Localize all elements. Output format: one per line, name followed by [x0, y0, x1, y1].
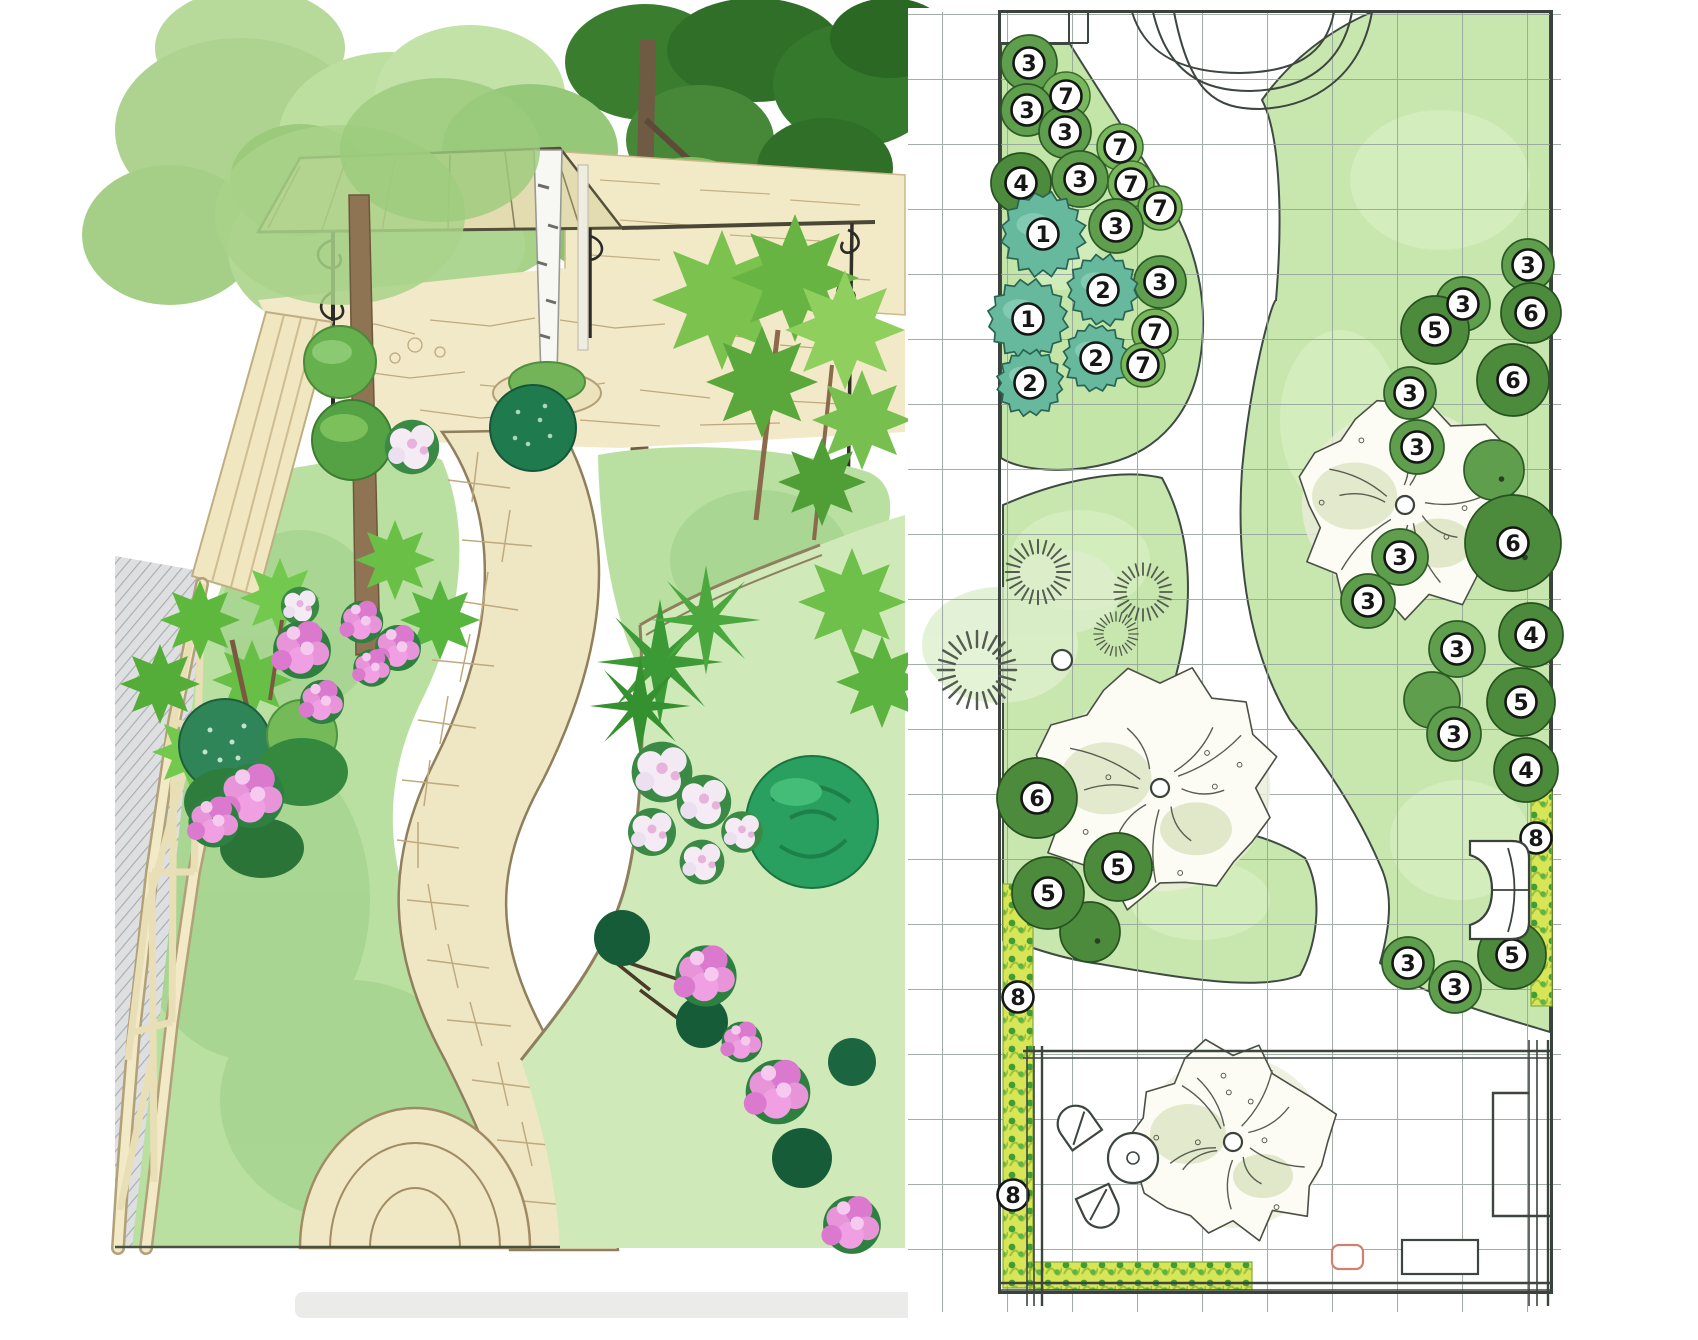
svg-text:3: 3 [1019, 99, 1034, 124]
svg-text:6: 6 [1029, 787, 1044, 812]
plant-marker-5: 5 [1506, 687, 1537, 718]
svg-text:3: 3 [1400, 952, 1415, 977]
plant-marker-7: 7 [1051, 81, 1082, 112]
plant-marker-2: 2 [1081, 343, 1112, 374]
svg-text:3: 3 [1152, 271, 1167, 296]
svg-text:4: 4 [1523, 624, 1538, 649]
plant-marker-3: 3 [1014, 48, 1045, 79]
svg-text:6: 6 [1523, 302, 1538, 327]
svg-text:2: 2 [1088, 347, 1103, 372]
plant-marker-1: 1 [1028, 219, 1059, 250]
svg-text:2: 2 [1095, 279, 1110, 304]
svg-text:4: 4 [1013, 172, 1028, 197]
plant-marker-6: 6 [1498, 365, 1529, 396]
white-post [578, 165, 588, 350]
plant-marker-1: 1 [1013, 304, 1044, 335]
tree-icon [1464, 440, 1524, 500]
svg-text:4: 4 [1518, 759, 1533, 784]
svg-text:7: 7 [1135, 354, 1150, 379]
svg-text:3: 3 [1057, 121, 1072, 146]
plant-marker-7: 7 [1105, 132, 1136, 163]
plant-marker-3: 3 [1448, 289, 1479, 320]
plant-marker-4: 4 [1516, 620, 1547, 651]
plant-marker-2: 2 [1088, 275, 1119, 306]
svg-text:2: 2 [1022, 372, 1037, 397]
svg-text:7: 7 [1112, 136, 1127, 161]
plant-marker-3: 3 [1402, 432, 1433, 463]
plant-marker-5: 5 [1033, 878, 1064, 909]
plant-marker-8: 8 [998, 1180, 1029, 1211]
svg-text:3: 3 [1455, 293, 1470, 318]
svg-text:7: 7 [1123, 173, 1138, 198]
plant-marker-5: 5 [1497, 940, 1528, 971]
plant-marker-6: 6 [1022, 783, 1053, 814]
plant-marker-6: 6 [1516, 298, 1547, 329]
plant-marker-5: 5 [1420, 315, 1451, 346]
plant-marker-5: 5 [1103, 852, 1134, 883]
plant-marker-3: 3 [1012, 95, 1043, 126]
plant-marker-3: 3 [1385, 542, 1416, 573]
svg-text:3: 3 [1447, 976, 1462, 1001]
plant-marker-3: 3 [1101, 211, 1132, 242]
plant-marker-2: 2 [1015, 368, 1046, 399]
svg-text:3: 3 [1449, 638, 1464, 663]
small-tree-ring [1052, 650, 1072, 670]
plant-marker-3: 3 [1513, 250, 1544, 281]
plant-marker-3: 3 [1440, 972, 1471, 1003]
plant-marker-3: 3 [1145, 267, 1176, 298]
svg-text:5: 5 [1040, 882, 1055, 907]
svg-text:3: 3 [1021, 52, 1036, 77]
svg-text:3: 3 [1446, 723, 1461, 748]
plant-marker-3: 3 [1442, 634, 1473, 665]
svg-text:8: 8 [1528, 827, 1543, 852]
svg-text:3: 3 [1392, 546, 1407, 571]
svg-text:3: 3 [1409, 436, 1424, 461]
svg-text:7: 7 [1147, 321, 1162, 346]
patio-table-rect [1402, 1240, 1478, 1274]
svg-text:5: 5 [1513, 691, 1528, 716]
plant-marker-3: 3 [1393, 948, 1424, 979]
plan-drawing: 3733743771332172723365633633435348533655… [908, 8, 1568, 1318]
plant-marker-4: 4 [1511, 755, 1542, 786]
overhanging-foliage-2 [340, 78, 540, 222]
svg-text:3: 3 [1360, 590, 1375, 615]
svg-text:7: 7 [1058, 85, 1073, 110]
plant-marker-4: 4 [1006, 168, 1037, 199]
plant-marker-3: 3 [1395, 378, 1426, 409]
plant-marker-3: 3 [1065, 164, 1096, 195]
svg-text:7: 7 [1152, 197, 1167, 222]
plant-marker-3: 3 [1439, 719, 1470, 750]
svg-text:1: 1 [1020, 308, 1035, 333]
svg-text:1: 1 [1035, 223, 1050, 248]
svg-text:3: 3 [1072, 168, 1087, 193]
grill-item [1332, 1245, 1363, 1269]
svg-text:3: 3 [1108, 215, 1123, 240]
svg-text:6: 6 [1505, 369, 1520, 394]
svg-text:8: 8 [1010, 986, 1025, 1011]
plant-marker-3: 3 [1050, 117, 1081, 148]
plant-marker-3: 3 [1353, 586, 1384, 617]
svg-text:5: 5 [1504, 944, 1519, 969]
svg-text:8: 8 [1005, 1184, 1020, 1209]
plant-marker-7: 7 [1116, 169, 1147, 200]
svg-text:3: 3 [1402, 382, 1417, 407]
svg-text:5: 5 [1427, 319, 1442, 344]
svg-text:5: 5 [1110, 856, 1125, 881]
garden-design-image: 3733743771332172723365633633435348533655… [0, 0, 1698, 1340]
round-table [1108, 1133, 1158, 1183]
plant-marker-7: 7 [1140, 317, 1171, 348]
svg-text:6: 6 [1505, 532, 1520, 557]
plant-marker-6: 6 [1498, 528, 1529, 559]
plant-marker-8: 8 [1003, 982, 1034, 1013]
plant-marker-7: 7 [1145, 193, 1176, 224]
plant-marker-7: 7 [1128, 350, 1159, 381]
svg-text:3: 3 [1520, 254, 1535, 279]
